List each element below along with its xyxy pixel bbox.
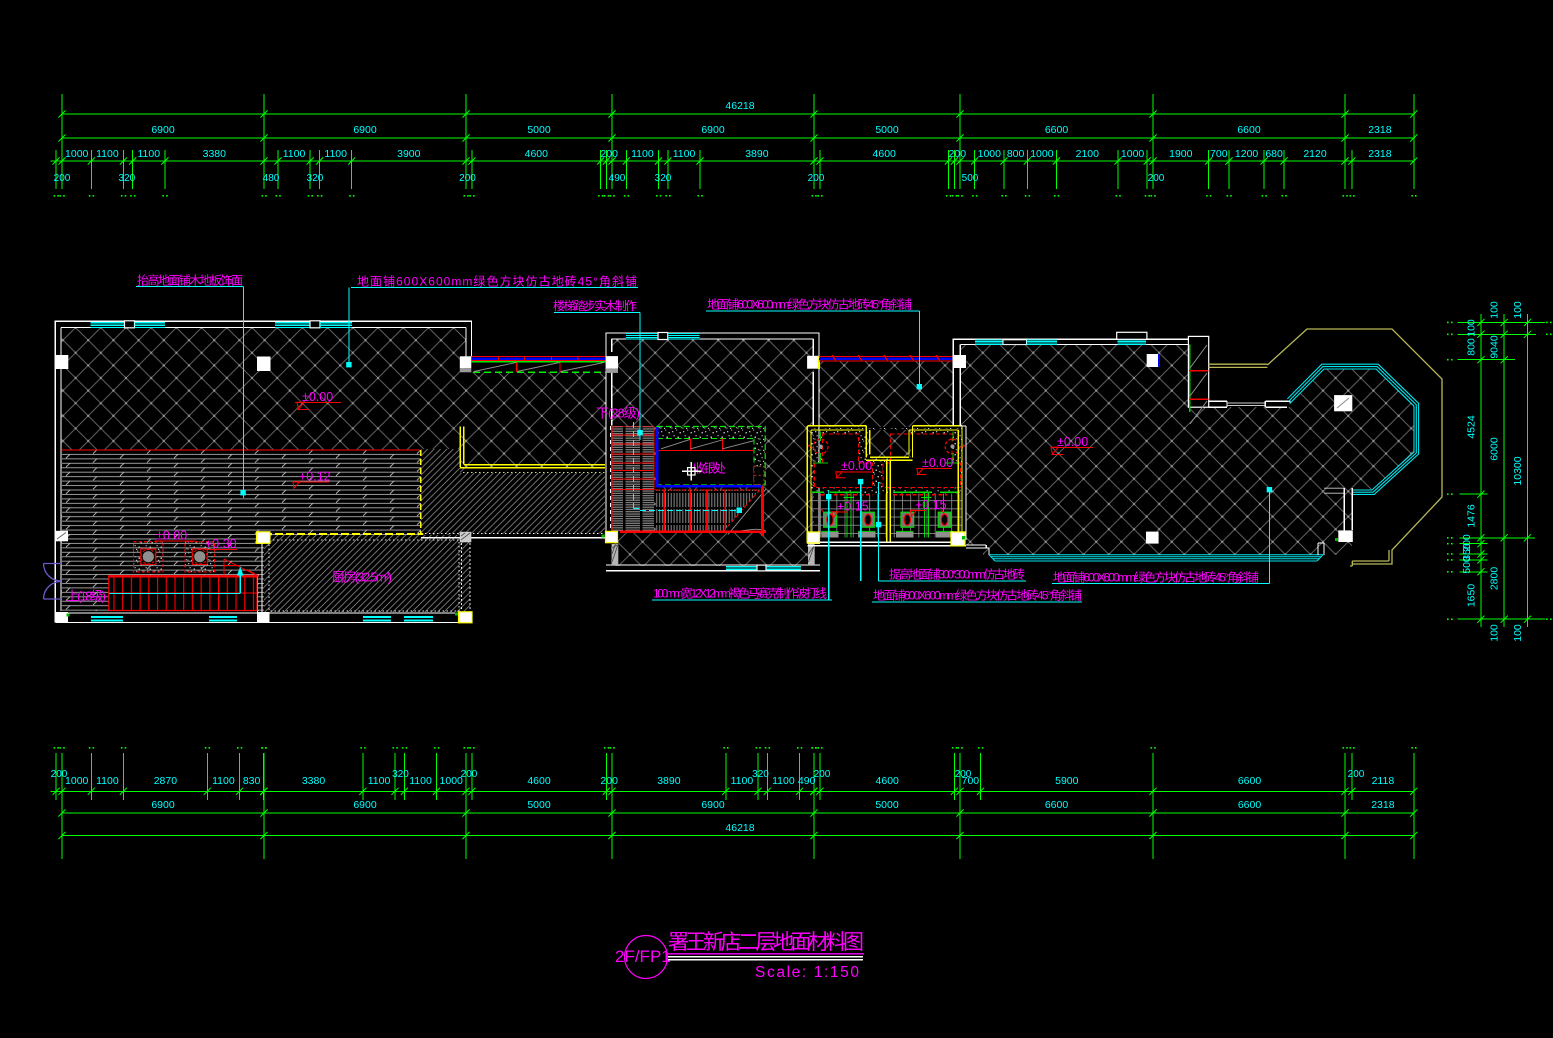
svg-text:1000: 1000 (440, 775, 464, 787)
svg-text:1000: 1000 (65, 775, 89, 787)
svg-text:200: 200 (459, 173, 476, 184)
svg-text:5000: 5000 (875, 799, 899, 811)
svg-text:6600: 6600 (1045, 799, 1069, 811)
svg-text:6900: 6900 (151, 799, 175, 811)
svg-text:480: 480 (263, 173, 280, 184)
svg-text:680: 680 (1265, 148, 1283, 160)
svg-text:2F/FP1: 2F/FP1 (615, 947, 671, 966)
svg-text:5900: 5900 (1055, 775, 1079, 787)
svg-text:1000: 1000 (1121, 148, 1145, 160)
svg-text:6600: 6600 (1237, 124, 1261, 136)
svg-text:3890: 3890 (745, 148, 769, 160)
svg-text:100mm宽12X12mm褐色马赛克制作波打线: 100mm宽12X12mm褐色马赛克制作波打线 (653, 586, 827, 601)
svg-text:500: 500 (1461, 556, 1473, 574)
svg-text:320: 320 (118, 173, 135, 184)
svg-text:4600: 4600 (525, 148, 549, 160)
svg-text:1900: 1900 (1169, 148, 1193, 160)
svg-text:地面铺600X600mm绿色方块仿古地砖45°角斜铺: 地面铺600X600mm绿色方块仿古地砖45°角斜铺 (707, 297, 912, 312)
svg-text:500: 500 (962, 173, 979, 184)
svg-text:1100: 1100 (731, 775, 754, 787)
svg-text:下(28级): 下(28级) (596, 406, 640, 421)
svg-text:1100: 1100 (368, 775, 391, 787)
svg-text:100: 100 (1466, 319, 1478, 337)
svg-text:6600: 6600 (1238, 799, 1262, 811)
svg-text:200: 200 (808, 173, 825, 184)
svg-text:320: 320 (392, 769, 409, 780)
svg-text:200: 200 (814, 769, 831, 780)
svg-text:1650: 1650 (1466, 584, 1478, 608)
svg-text:±0.00: ±0.00 (841, 459, 872, 473)
svg-text:6600: 6600 (1045, 124, 1069, 136)
svg-text:±0.00: ±0.00 (156, 529, 187, 543)
svg-text:5000: 5000 (527, 124, 551, 136)
svg-text:厨房(32.5m²): 厨房(32.5m²) (332, 570, 392, 585)
svg-text:1100: 1100 (138, 148, 161, 160)
svg-text:上(18级): 上(18级) (66, 589, 106, 604)
svg-text:2118: 2118 (1372, 775, 1395, 787)
svg-text:9040: 9040 (1489, 335, 1501, 359)
svg-text:830: 830 (243, 775, 261, 787)
svg-text:4600: 4600 (876, 775, 900, 787)
svg-text:6900: 6900 (353, 799, 377, 811)
svg-text:3900: 3900 (397, 148, 421, 160)
svg-text:2870: 2870 (154, 775, 178, 787)
svg-text:1000: 1000 (65, 148, 89, 160)
svg-text:署王新店二层地面材料图: 署王新店二层地面材料图 (668, 931, 864, 954)
svg-text:楼梯踏步实木制作: 楼梯踏步实木制作 (553, 298, 637, 313)
svg-text:1200: 1200 (1235, 148, 1259, 160)
svg-text:100: 100 (1512, 624, 1524, 642)
svg-text:4600: 4600 (873, 148, 897, 160)
svg-text:3380: 3380 (203, 148, 227, 160)
svg-text:+0.30: +0.30 (205, 537, 237, 551)
svg-text:6900: 6900 (701, 799, 725, 811)
svg-text:490: 490 (609, 173, 626, 184)
svg-text:6600: 6600 (1238, 775, 1262, 787)
svg-text:4600: 4600 (527, 775, 551, 787)
svg-text:1100: 1100 (631, 148, 654, 160)
svg-text:抬高地面铺木地板饰面: 抬高地面铺木地板饰面 (137, 273, 243, 288)
svg-text:200: 200 (51, 769, 68, 780)
svg-text:提高地面铺300*300mm仿古地砖: 提高地面铺300*300mm仿古地砖 (889, 567, 1025, 582)
svg-text:1100: 1100 (212, 775, 235, 787)
svg-text:6900: 6900 (701, 124, 725, 136)
svg-text:200: 200 (54, 173, 71, 184)
svg-text:2120: 2120 (1303, 148, 1327, 160)
svg-text:100: 100 (1489, 624, 1501, 642)
svg-text:1000: 1000 (978, 148, 1002, 160)
svg-text:Scale: 1:150: Scale: 1:150 (755, 964, 859, 981)
svg-text:200: 200 (949, 148, 967, 160)
svg-text:1476: 1476 (1466, 504, 1478, 528)
svg-text:3380: 3380 (302, 775, 326, 787)
svg-text:地面铺600X600mm绿色方块仿古地砖45°角斜铺: 地面铺600X600mm绿色方块仿古地砖45°角斜铺 (1053, 570, 1259, 585)
svg-text:6000: 6000 (1489, 437, 1501, 461)
svg-text:1100: 1100 (409, 775, 432, 787)
svg-text:2318: 2318 (1371, 799, 1395, 811)
svg-text:100: 100 (1512, 301, 1524, 319)
svg-text:320: 320 (307, 173, 324, 184)
svg-text:2318: 2318 (1368, 148, 1392, 160)
svg-text:200: 200 (955, 769, 972, 780)
svg-text:1000: 1000 (1030, 148, 1054, 160)
svg-text:200: 200 (461, 769, 478, 780)
svg-text:地面铺600X600mm绿色方块仿古地砖45°角斜铺: 地面铺600X600mm绿色方块仿古地砖45°角斜铺 (873, 588, 1082, 603)
svg-text:5000: 5000 (875, 124, 899, 136)
svg-text:46218: 46218 (725, 822, 754, 834)
svg-text:200: 200 (1148, 173, 1165, 184)
svg-text:1100: 1100 (324, 148, 347, 160)
svg-text:800: 800 (1466, 338, 1478, 356)
svg-text:收银处: 收银处 (693, 462, 726, 476)
svg-text:3890: 3890 (657, 775, 681, 787)
svg-text:320: 320 (655, 173, 672, 184)
svg-text:1100: 1100 (283, 148, 306, 160)
svg-text:±0.00: ±0.00 (922, 456, 953, 470)
svg-text:1100: 1100 (772, 775, 795, 787)
svg-text:2318: 2318 (1368, 124, 1392, 136)
svg-text:46218: 46218 (725, 100, 754, 112)
svg-text:700: 700 (1210, 148, 1228, 160)
svg-text:1100: 1100 (96, 148, 119, 160)
svg-text:320: 320 (752, 769, 769, 780)
svg-text:5000: 5000 (527, 799, 551, 811)
svg-text:100: 100 (1489, 301, 1501, 319)
svg-text:10300: 10300 (1512, 456, 1524, 485)
svg-text:6900: 6900 (353, 124, 377, 136)
svg-text:200: 200 (600, 775, 618, 787)
svg-text:地面铺600X600mm绿色方块仿古地砖45°角斜铺: 地面铺600X600mm绿色方块仿古地砖45°角斜铺 (357, 274, 637, 289)
svg-text:200: 200 (600, 148, 618, 160)
svg-text:4524: 4524 (1466, 415, 1478, 439)
svg-text:6900: 6900 (151, 124, 175, 136)
svg-text:800: 800 (1007, 148, 1025, 160)
svg-text:200: 200 (1348, 769, 1365, 780)
svg-text:1100: 1100 (673, 148, 696, 160)
svg-text:1100: 1100 (96, 775, 119, 787)
svg-text:2100: 2100 (1076, 148, 1100, 160)
svg-text:2800: 2800 (1489, 567, 1501, 591)
